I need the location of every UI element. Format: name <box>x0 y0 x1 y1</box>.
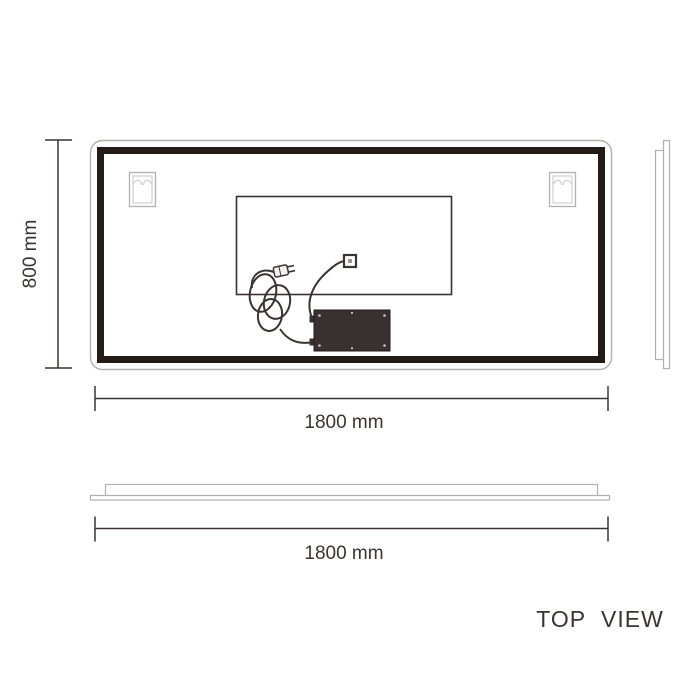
dimension-height <box>45 140 72 368</box>
mirror-back-view <box>91 141 612 370</box>
led-driver-body <box>314 310 390 351</box>
back-width-dimension-label: 1800 mm <box>304 412 383 433</box>
height-dimension-label: 800 mm <box>20 220 41 289</box>
led-panel-outline <box>237 197 452 295</box>
top-view-glass <box>91 496 610 501</box>
top-view-back-panel <box>106 485 598 497</box>
side-view-glass <box>664 141 670 369</box>
product-dimension-diagram: 800 mm 1800 mm 1800 mm TOP VIEW <box>0 0 700 700</box>
dimension-width-back <box>95 386 608 411</box>
diagram-canvas: 800 mm 1800 mm 1800 mm TOP VIEW <box>0 0 700 700</box>
top-width-dimension-label: 1800 mm <box>304 543 383 564</box>
hanging-bracket-right-icon <box>550 173 576 207</box>
top-view-caption: TOP VIEW <box>536 606 664 632</box>
dimension-width-top <box>95 517 608 542</box>
mirror-side-view <box>656 141 670 369</box>
hanging-bracket-left-icon <box>130 173 156 207</box>
mirror-top-view <box>91 485 610 501</box>
led-driver-box-icon <box>310 310 391 351</box>
touch-sensor-icon <box>344 255 356 267</box>
